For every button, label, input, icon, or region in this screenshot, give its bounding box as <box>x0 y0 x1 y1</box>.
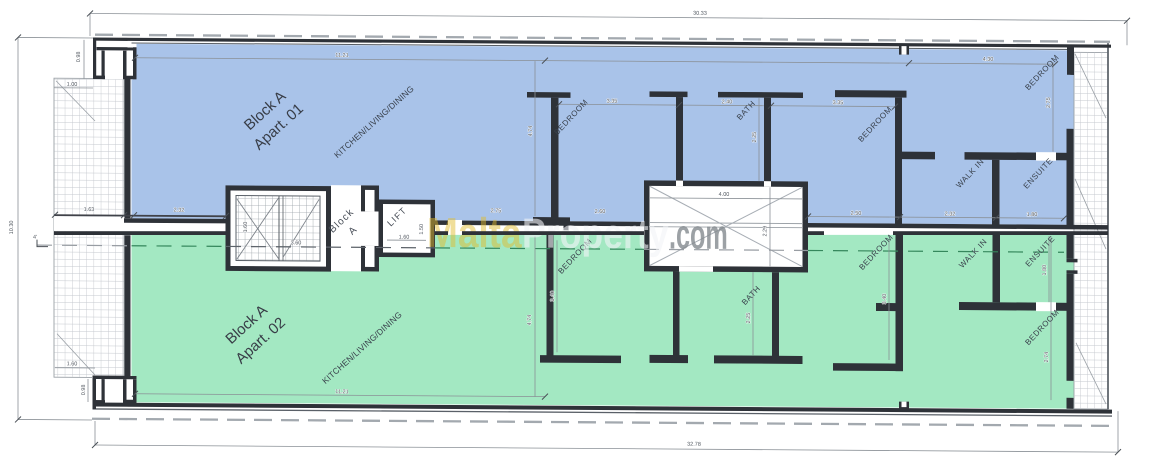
svg-text:3.60: 3.60 <box>291 240 302 246</box>
svg-text:2.40: 2.40 <box>722 99 733 105</box>
svg-text:4.74: 4.74 <box>527 315 533 326</box>
svg-text:4': 4' <box>33 235 37 241</box>
svg-text:1.60: 1.60 <box>67 361 78 367</box>
svg-text:2.29: 2.29 <box>763 226 769 237</box>
svg-text:3.35: 3.35 <box>607 99 618 105</box>
svg-text:3.35: 3.35 <box>833 100 844 106</box>
svg-text:4.74: 4.74 <box>528 126 534 137</box>
svg-text:1.00: 1.00 <box>67 82 78 88</box>
svg-text:32.78: 32.78 <box>687 442 701 448</box>
svg-text:0.98: 0.98 <box>81 385 87 396</box>
svg-text:1.80: 1.80 <box>1042 265 1048 276</box>
svg-text:30.33: 30.33 <box>693 11 707 17</box>
svg-text:1.60: 1.60 <box>399 235 410 241</box>
svg-text:2.32: 2.32 <box>174 208 185 214</box>
svg-text:11.21: 11.21 <box>335 389 348 395</box>
svg-text:1.63: 1.63 <box>84 207 95 213</box>
svg-text:2.74: 2.74 <box>1044 352 1050 363</box>
svg-text:11.21: 11.21 <box>335 53 348 59</box>
svg-text:3.40: 3.40 <box>550 291 556 302</box>
svg-text:0.98: 0.98 <box>76 52 82 63</box>
svg-text:2.25: 2.25 <box>752 132 758 143</box>
svg-text:2.25: 2.25 <box>746 313 752 324</box>
svg-text:4.00: 4.00 <box>719 192 730 198</box>
svg-text:10.30: 10.30 <box>9 221 15 235</box>
svg-text:1.80: 1.80 <box>1027 212 1038 218</box>
svg-text:3.40: 3.40 <box>882 294 888 305</box>
svg-text:4.30: 4.30 <box>983 57 994 63</box>
svg-text:2.75: 2.75 <box>1046 97 1052 108</box>
svg-text:1.60: 1.60 <box>243 222 249 233</box>
svg-text:2.32: 2.32 <box>945 211 956 217</box>
svg-text:.com: .com <box>669 212 728 258</box>
svg-text:1.50: 1.50 <box>419 224 425 235</box>
svg-text:2.50: 2.50 <box>851 211 862 217</box>
